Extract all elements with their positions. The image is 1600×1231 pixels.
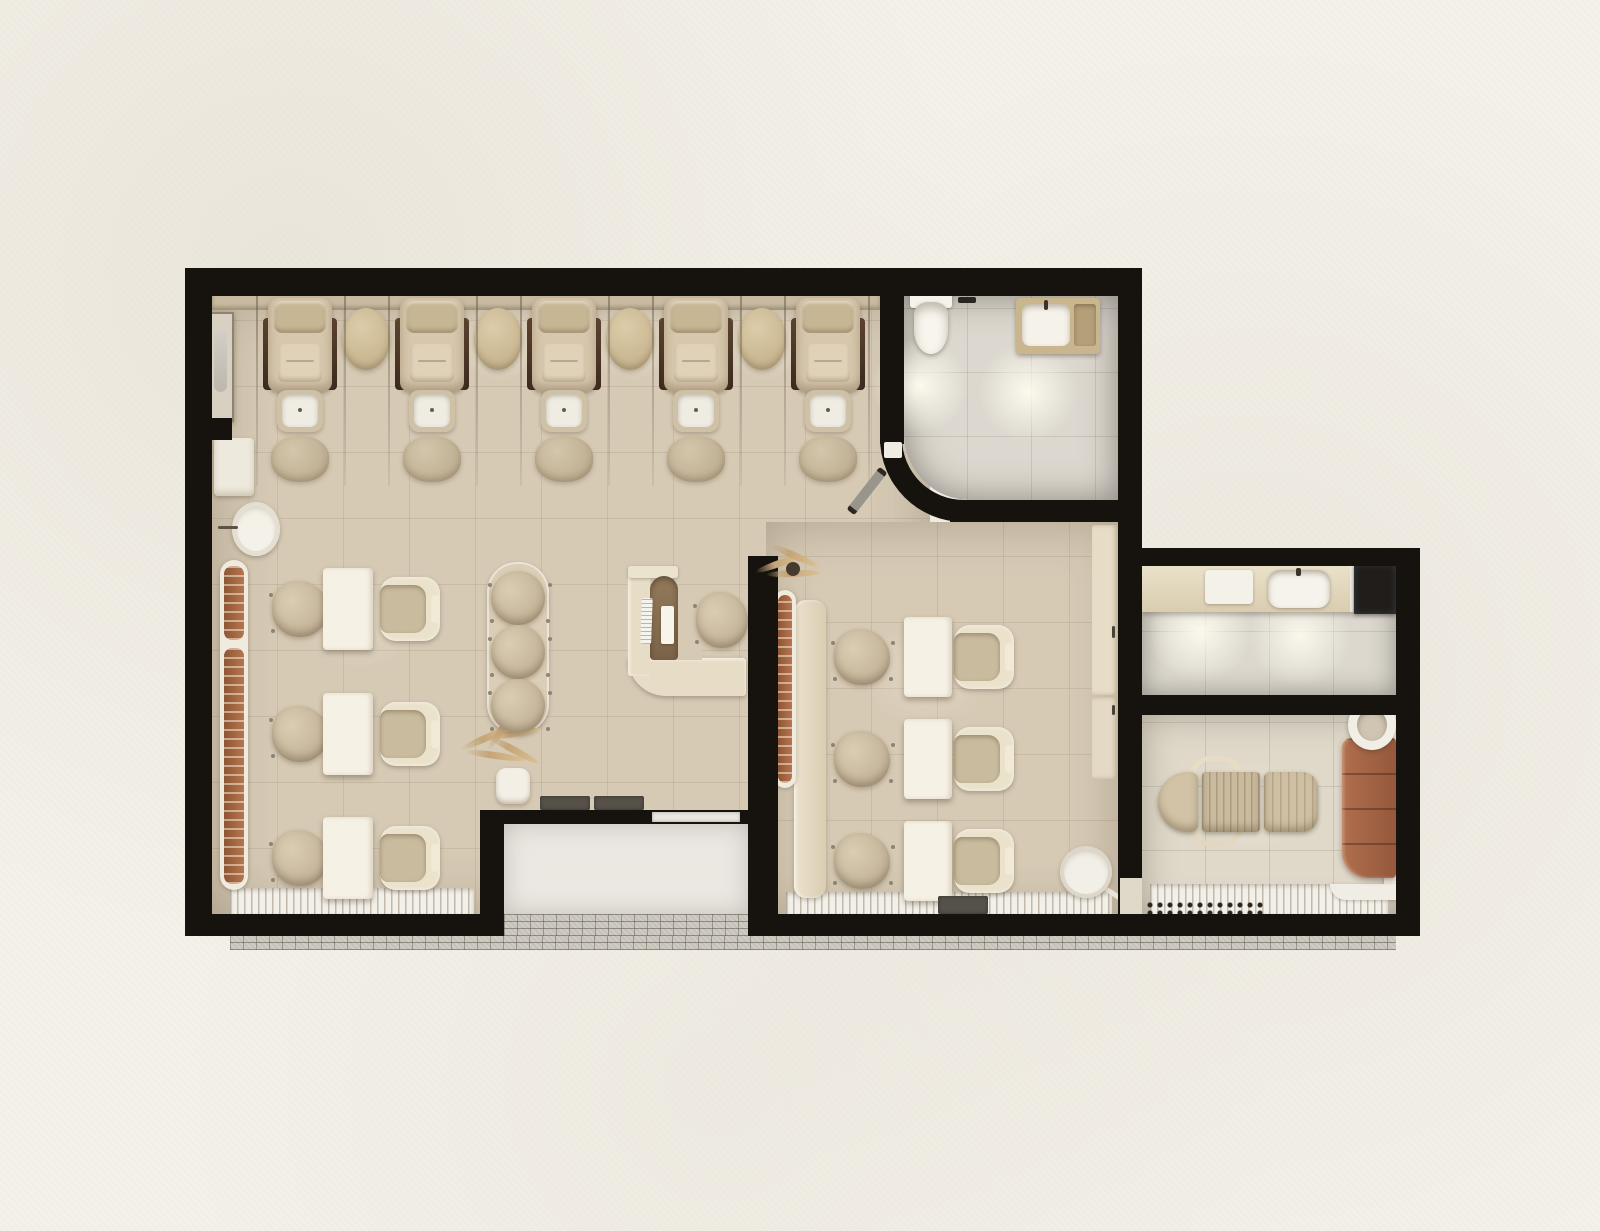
ottoman [403, 436, 461, 482]
chair-seat-cushion [278, 344, 322, 382]
chair-headrest [670, 301, 722, 333]
stylist-chair [380, 826, 440, 890]
wall-top [185, 268, 1142, 296]
plant-pot [496, 768, 530, 804]
spine-wall [1118, 268, 1142, 936]
chair-headrest [1005, 847, 1013, 875]
trolley-cabinet [1342, 738, 1396, 878]
storage-cabinet [1092, 525, 1118, 695]
side-table [738, 308, 786, 370]
tech-chair [954, 829, 1014, 893]
glass-divider [868, 296, 870, 486]
stylist-chair [380, 577, 440, 641]
client-chair [272, 830, 328, 886]
vanity-shelf [1074, 304, 1096, 346]
glass-divider [476, 296, 478, 486]
wall-bottom-right [1142, 914, 1420, 936]
foot-basin [673, 390, 719, 432]
ottoman [535, 436, 593, 482]
pedicure-station [527, 298, 601, 516]
bed-footrest [1264, 772, 1318, 832]
wall-bottom-left [185, 914, 482, 936]
plant-tray [354, 324, 376, 348]
tech-chair [954, 625, 1014, 689]
dried-plant [458, 716, 546, 810]
wall-cabinet [214, 438, 254, 496]
wall-left-pier [210, 418, 232, 440]
door-handle [1112, 705, 1115, 715]
round-stool [491, 679, 545, 733]
window-bench [794, 600, 826, 898]
side-table [474, 308, 522, 370]
vanity-sink [1016, 298, 1100, 354]
sidewalk-mosaic-strip [230, 936, 1396, 950]
floor-plan [0, 0, 1600, 1231]
door-jamb [884, 442, 902, 458]
kitchen-sink [1268, 570, 1330, 608]
entry-mosaic-paving [504, 914, 748, 936]
chair-headrest [802, 301, 854, 333]
manicure-table [904, 617, 952, 697]
manicure-table [904, 719, 952, 799]
spine-wall-opening [1120, 878, 1142, 914]
side-table [606, 308, 654, 370]
reception-stool [696, 592, 748, 648]
pedicure-station [659, 298, 733, 516]
doormat [938, 896, 988, 914]
pedicure-station [395, 298, 469, 516]
entrance-doormat [594, 796, 644, 810]
chair-headrest [431, 844, 439, 872]
corner-ledge [1330, 884, 1396, 900]
laundry-basket [1060, 846, 1112, 898]
sink-faucet [218, 526, 238, 529]
ottoman [799, 436, 857, 482]
chair-headrest [406, 301, 458, 333]
chair-seat-cushion [542, 344, 586, 382]
counter-divider [1350, 566, 1353, 612]
toilet [908, 290, 954, 358]
chair-cushion [380, 585, 426, 633]
client-chair [272, 581, 328, 637]
client-chair [834, 629, 890, 685]
plant-core [786, 562, 800, 576]
sink-basin [1022, 304, 1070, 346]
chair-headrest [538, 301, 590, 333]
glass-divider [388, 296, 390, 486]
sink-faucet [1296, 568, 1301, 576]
retail-shelf [220, 560, 248, 890]
pedicure-station [263, 298, 337, 516]
glass-divider [344, 296, 346, 486]
manicure-table [323, 817, 373, 899]
chair-cushion [380, 834, 426, 882]
cooktop [1354, 564, 1396, 614]
chair-cushion [954, 633, 1000, 681]
ottoman [667, 436, 725, 482]
glass-divider [740, 296, 742, 486]
restroom-wall-bottom [950, 500, 1142, 522]
cutting-board [1205, 570, 1253, 604]
wall-left [185, 268, 212, 936]
reception-desk-cap [628, 566, 678, 578]
chair-cushion [954, 837, 1000, 885]
floor-entrance-alcove [504, 824, 748, 914]
chair-headrest [431, 720, 439, 748]
wall-top-right-wing [1142, 548, 1420, 566]
bed-headrest [1158, 772, 1198, 832]
chair-seat-cushion [674, 344, 718, 382]
sink-faucet [1044, 300, 1048, 310]
side-table-with-plant [342, 308, 390, 370]
cabinet-handle [1112, 626, 1115, 638]
chair-headrest [1005, 643, 1013, 671]
shelf-products [224, 648, 244, 884]
entrance-doormat [540, 796, 590, 810]
glass-divider [652, 296, 654, 486]
bed-middle [1202, 772, 1260, 832]
foot-basin [277, 390, 323, 432]
pedicure-station [791, 298, 865, 516]
alcove-wall-left [480, 810, 504, 936]
manicure-table [323, 568, 373, 650]
chair-seat-cushion [806, 344, 850, 382]
foot-basin [805, 390, 851, 432]
chair-headrest [431, 595, 439, 623]
wall-bottom-middle [748, 914, 1142, 936]
pebble-strip [1146, 900, 1264, 914]
chair-headrest [274, 301, 326, 333]
chair-headrest [1005, 745, 1013, 773]
glass-divider [608, 296, 610, 486]
manicure-table [323, 693, 373, 775]
plant [752, 544, 828, 608]
chair-cushion [380, 710, 426, 758]
tech-chair [954, 727, 1014, 791]
round-stool [491, 625, 545, 679]
client-chair [834, 833, 890, 889]
shelf-products [224, 566, 244, 640]
glass-entrance-door [652, 812, 740, 822]
hanging-robe [214, 330, 227, 392]
round-stool [491, 571, 545, 625]
notepad [661, 606, 674, 644]
client-chair [834, 731, 890, 787]
stylist-chair [380, 702, 440, 766]
ottoman [271, 436, 329, 482]
shelf-products [778, 595, 792, 783]
foot-basin [409, 390, 455, 432]
restroom-wall-left [880, 268, 904, 444]
massage-bed [1158, 768, 1320, 836]
keyboard [640, 598, 653, 644]
client-chair [272, 706, 328, 762]
kitchenette-wall-bottom [1142, 695, 1396, 715]
wall-sink [232, 502, 280, 556]
chair-seat-cushion [410, 344, 454, 382]
foot-basin [541, 390, 587, 432]
glass-divider [520, 296, 522, 486]
glass-divider [784, 296, 786, 486]
towel-hook [958, 297, 976, 303]
sliding-door-panel [1092, 697, 1118, 779]
toilet-bowl [914, 302, 948, 354]
wall-right [1396, 548, 1420, 936]
glass-divider [256, 296, 258, 486]
chair-cushion [954, 735, 1000, 783]
manicure-table [904, 821, 952, 901]
